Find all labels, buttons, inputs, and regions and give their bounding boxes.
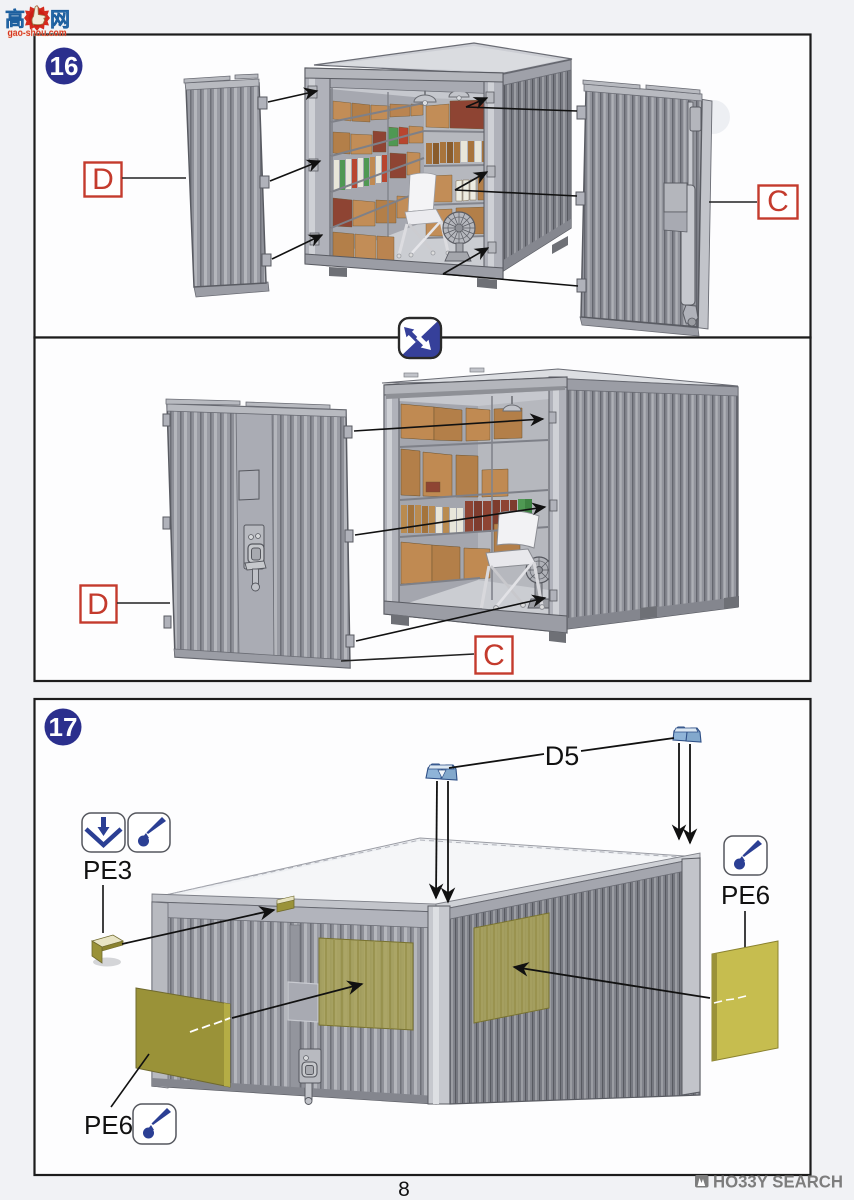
svg-text:PE3: PE3 <box>83 855 132 885</box>
svg-text:C: C <box>483 639 505 672</box>
svg-text:17: 17 <box>49 712 78 742</box>
svg-text:D: D <box>92 163 114 196</box>
svg-text:gao-shou.com: gao-shou.com <box>8 28 67 39</box>
svg-text:16: 16 <box>50 51 79 81</box>
svg-text:HO33Y SEARCH: HO33Y SEARCH <box>713 1172 843 1192</box>
svg-text:D5: D5 <box>545 741 580 771</box>
svg-text:C: C <box>767 185 789 218</box>
svg-text:PE6: PE6 <box>721 880 770 910</box>
svg-text:8: 8 <box>398 1178 410 1200</box>
svg-text:PE6: PE6 <box>84 1110 133 1140</box>
svg-text:D: D <box>87 588 109 621</box>
